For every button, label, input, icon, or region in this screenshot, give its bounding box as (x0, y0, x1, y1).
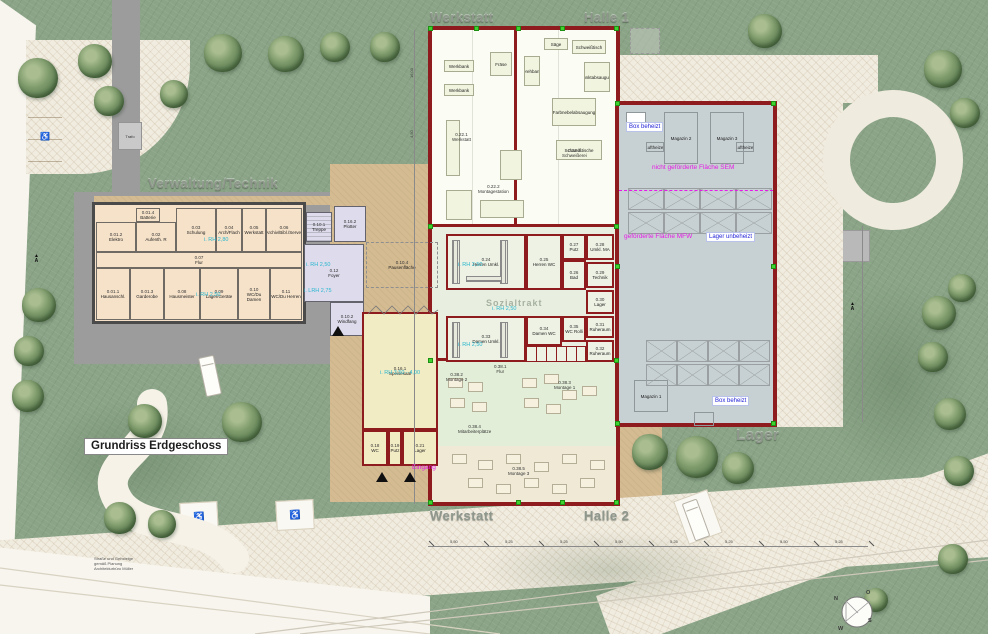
room-magazin-3: Magazin 3 (710, 112, 744, 164)
section-marker-a: ▲A (34, 254, 39, 264)
annotation: nicht geförderte Fläche SEM (652, 164, 734, 171)
room-0.11: 0.11WC/Du Herren (270, 268, 302, 320)
tree (632, 434, 668, 470)
tree (944, 456, 974, 486)
room-name: Windfang (337, 319, 356, 324)
room-name: Archiv/Bibl./Server (266, 230, 302, 235)
desk (496, 484, 511, 494)
room-0.01.2: 0.01.2Elektro (96, 222, 136, 252)
room-0.10.1: 0.10.1Treppe (306, 212, 332, 242)
annotation: geförderte Fläche MFW (624, 233, 692, 240)
room-magazin-2: Magazin 2 (664, 112, 698, 164)
desk (450, 398, 465, 408)
outdoor-shed (630, 28, 660, 54)
room (526, 346, 586, 362)
survey-point (615, 264, 620, 269)
desk (562, 390, 577, 400)
desk (534, 462, 549, 472)
annotation: i. RH 2,50 (492, 306, 516, 312)
room-name: Magazin 2 (671, 136, 692, 141)
room-0.26: 0.26Bad (562, 260, 586, 290)
tree (148, 510, 176, 538)
room-name: Magazin 3 (717, 136, 738, 141)
room-name: Werkstatt (245, 230, 264, 235)
room (480, 200, 524, 218)
storage-rack (700, 188, 736, 210)
storage-rack (739, 340, 770, 362)
room-name: Lager (414, 448, 426, 453)
survey-point (516, 26, 521, 31)
room-name: WC (371, 448, 379, 453)
compass-w: W (838, 626, 843, 632)
tree (222, 402, 262, 442)
handicap-stall: ♿ (275, 499, 315, 531)
tree (78, 44, 112, 78)
desk (582, 386, 597, 396)
room-name: Luftheizer (736, 145, 754, 150)
annotation: Box beheizt (712, 396, 749, 406)
dimension-line-left (414, 30, 415, 504)
compass-n: N (834, 596, 838, 602)
room-name: Säge (551, 42, 562, 47)
room-0.06: 0.06Archiv/Bibl./Server (266, 208, 302, 252)
room-name: Treppe (312, 227, 326, 232)
label-werkstatt-top: Werkstatt (430, 10, 494, 25)
room-name: Lager (594, 302, 606, 307)
trafo-label: Trafo (125, 134, 134, 139)
interior-wall (432, 224, 616, 227)
room-schwei-tisch: Schweißtisch (572, 40, 606, 54)
compass-e: O (866, 590, 870, 596)
room-name: Aufenth. R (145, 237, 166, 242)
tree (922, 296, 956, 330)
desk (562, 454, 577, 464)
room-0.03: 0.03Schulung (176, 208, 216, 252)
bench (466, 276, 502, 282)
tree (722, 452, 754, 484)
storage-rack (664, 212, 700, 234)
label-halle1: Halle 1 (584, 10, 629, 25)
annotation: Eingang (412, 464, 436, 471)
room-name: Farbnebelabsaugung (553, 110, 596, 115)
room-name: Hausanschl. (101, 294, 126, 299)
room-name: Bad (570, 275, 578, 280)
room-name: Herren WC (533, 262, 556, 267)
storage-rack (646, 364, 677, 386)
survey-point (615, 421, 620, 426)
annotation: Lager unbeheizt (706, 232, 755, 242)
handicap-icon: ♿ (40, 132, 50, 141)
room-farbnebelabsaugung: Farbnebelabsaugung (552, 98, 596, 126)
label-halle2: Halle 2 (584, 508, 629, 523)
survey-point (560, 500, 565, 505)
room (694, 412, 714, 426)
dimension-value: 5,25 (505, 539, 513, 544)
tree (948, 274, 976, 302)
room-name: Werkbank (449, 88, 469, 93)
survey-point (428, 500, 433, 505)
room (446, 190, 472, 220)
desk (468, 478, 483, 488)
storage-rack (700, 212, 736, 234)
survey-point (516, 500, 521, 505)
tree (22, 288, 56, 322)
plan-notes: Straße und Gehsteige gemäß Planung Archi… (94, 556, 194, 571)
room-0.19: 0.19Putz (388, 430, 402, 466)
room-name: Plotter (343, 224, 356, 229)
interior-wall (514, 30, 517, 224)
loop-path (823, 90, 963, 230)
annotation: Box beheizt (626, 122, 663, 132)
desk (452, 454, 467, 464)
lawn-patch (480, 530, 740, 610)
tree (676, 436, 718, 478)
tree (160, 80, 188, 108)
room-0.35: 0.35WC Rolli (562, 316, 586, 342)
storage-rack (736, 212, 772, 234)
tree (104, 502, 136, 534)
survey-point (614, 26, 619, 31)
room-0.10.4: 0.10.4Pausenfläche (366, 242, 438, 288)
room-0.34: 0.34Damen WC (526, 316, 562, 346)
survey-point (771, 264, 776, 269)
desk (524, 398, 539, 408)
annotation: 0.22.2 Montagestation (478, 184, 509, 194)
room-name: Pausenfläche (388, 265, 415, 270)
lockers (452, 322, 460, 358)
room-0.21: 0.21Lager (402, 430, 438, 466)
storage-rack (708, 364, 739, 386)
room-s-ge: Säge (544, 38, 568, 50)
room-werkbank: Werkbank (444, 60, 474, 72)
survey-point (474, 26, 479, 31)
room-punktabsaugung: Punktabsaugung (584, 62, 610, 92)
room-0.16.2: 0.16.2Plotter (334, 206, 366, 242)
room-0.04: 0.04Arch/Flach (216, 208, 242, 252)
tree (204, 34, 242, 72)
room-0.01.1: 0.01.1Hausanschl. (96, 268, 130, 320)
desk (522, 378, 537, 388)
room-name: Schweißtisch (576, 45, 603, 50)
annotation: 0.22.3 Schweißerei (562, 148, 587, 158)
survey-point (771, 101, 776, 106)
room-name: WC Rolli (565, 329, 583, 334)
room-name: WC/Du Damen (239, 292, 269, 302)
dimension-value: 5,25 (835, 539, 843, 544)
compass-s: S (868, 618, 872, 624)
survey-point (614, 358, 619, 363)
room-0.01.3: 0.01.3Garderobe (130, 268, 164, 320)
room-name: Hausmeister (169, 294, 194, 299)
survey-point (614, 224, 619, 229)
annotation: i. RH 2,50 (458, 342, 482, 348)
storage-rack (628, 188, 664, 210)
label-lager: Lager (736, 427, 779, 444)
tree (370, 32, 400, 62)
room-name: Arch/Flach (218, 230, 240, 235)
desk (524, 478, 539, 488)
room-0.30: 0.30Lager (586, 290, 614, 314)
room-0.07: 0.07Flur (96, 252, 302, 268)
survey-point (428, 224, 433, 229)
annotation: 0.38.1 Flur (494, 364, 507, 374)
tree (18, 58, 58, 98)
desk (468, 382, 483, 392)
entrance-marker (332, 326, 344, 336)
label-verwaltung: Verwaltung/Technik (148, 176, 278, 191)
tree (950, 98, 980, 128)
survey-point (428, 26, 433, 31)
dimension-value: 5,25 (725, 539, 733, 544)
room-name: Magazin 1 (641, 394, 662, 399)
north-path (618, 55, 878, 103)
room-name: Ruheraum (589, 327, 610, 332)
desk (580, 478, 595, 488)
room-name: Flur (195, 260, 203, 265)
room-name: Batterie (140, 215, 156, 220)
desk (506, 454, 521, 464)
room-0.10: 0.10WC/Du Damen (238, 268, 270, 320)
annotation: 0.38.3 Montage 1 (554, 380, 575, 390)
storage-rack (677, 364, 708, 386)
room-name: Umkl. MA (590, 247, 610, 252)
room-0.29: 0.29Technik (586, 262, 614, 288)
room-name: Putz (569, 247, 578, 252)
annotation: 0.38.4 Mitarbeiterplätze (458, 424, 491, 434)
room-0.32: 0.32Ruheraum (586, 340, 614, 362)
parking-stall-lines (28, 96, 62, 166)
tree (938, 544, 968, 574)
room-0.25: 0.25Herren WC (526, 234, 562, 290)
tree (924, 50, 962, 88)
room-drehbank: Drehbank (524, 56, 540, 86)
room-0.18: 0.18WC (362, 430, 388, 466)
tree (94, 86, 124, 116)
room-name: Werkbank (449, 64, 469, 69)
room-0.08: 0.08Hausmeister (164, 268, 200, 320)
annotation: i. RH 3,50 - 4,00 (380, 370, 420, 376)
note-line: Architekturbüro Müller (94, 566, 194, 571)
section-marker-a: ▲A (850, 302, 855, 312)
desk (546, 404, 561, 414)
room-name: Luftheizer (646, 145, 664, 150)
handicap-stall: ♿ (179, 501, 219, 533)
room-0.02: 0.02Aufenth. R (136, 222, 176, 252)
room-0.27: 0.27Putz (562, 234, 586, 260)
desk (552, 484, 567, 494)
room-0.31: 0.31Ruheraum (586, 316, 614, 338)
room (500, 150, 522, 180)
survey-point (771, 421, 776, 426)
desk (478, 460, 493, 470)
dimension-value: 5,50 (780, 539, 788, 544)
room (446, 120, 460, 176)
room-name: Foyer (328, 273, 340, 278)
room-fr-se: Fräse (490, 52, 512, 76)
room-name: Elektro (109, 237, 123, 242)
tree (934, 398, 966, 430)
tree (12, 380, 44, 412)
tree (320, 32, 350, 62)
survey-point (615, 101, 620, 106)
annotation: i. RH 2,50 (458, 262, 482, 268)
storage-rack (628, 212, 664, 234)
annotation: i. RH 2,50 (306, 262, 330, 268)
dimension-value: 16,00 (409, 68, 414, 78)
desk (590, 460, 605, 470)
storage-rack (664, 188, 700, 210)
dimension-value: 5,25 (560, 539, 568, 544)
annotation: i. RH 2,50 (196, 292, 220, 298)
room-name: Drehbank (524, 69, 540, 74)
storage-rack (677, 340, 708, 362)
entrance-marker (376, 472, 388, 482)
grid-line (558, 30, 559, 224)
lager-zone-line (619, 190, 773, 191)
survey-point (428, 358, 433, 363)
tree (128, 404, 162, 438)
lockers (500, 322, 508, 358)
room-name: Punktabsaugung (584, 75, 610, 80)
annotation: i. LRH 2,75 (304, 288, 332, 294)
room-werkbank: Werkbank (444, 84, 474, 96)
tree (748, 14, 782, 48)
dimension-value: 5,50 (615, 539, 623, 544)
room-name: Technik (592, 275, 607, 280)
dimension-value: 5,50 (450, 539, 458, 544)
annotation: i. RH 2,80 (204, 237, 228, 243)
dimension-line-right (862, 226, 863, 422)
dimension-value: 5,25 (670, 539, 678, 544)
room-name: Putz (390, 448, 399, 453)
storage-rack (646, 340, 677, 362)
site-plan: ♿ Trafo ♿ ♿ Sozialtrakt ▲A ▲A (0, 0, 988, 634)
annotation: 0.22.1 Werkstatt (452, 132, 471, 142)
room-luftheizer: Luftheizer (736, 142, 754, 152)
annotation: 0.38.2 Montage 2 (446, 372, 467, 382)
tree (14, 336, 44, 366)
entrance-marker (404, 472, 416, 482)
room-name: Schulung (187, 230, 206, 235)
storage-rack (739, 364, 770, 386)
trafo-box: Trafo (118, 122, 142, 150)
label-werkstatt-bottom: Werkstatt (430, 508, 494, 523)
room-name: Garderobe (136, 294, 158, 299)
room-0.01.4: 0.01.4Batterie (136, 208, 160, 222)
room-name: Ruheraum (589, 351, 610, 356)
room-name: WC/Du Herren (271, 294, 301, 299)
room-name: Fräse (495, 62, 507, 67)
room-0.28: 0.28Umkl. MA (586, 234, 614, 260)
storage-rack (708, 340, 739, 362)
room-name: Damen WC (532, 331, 555, 336)
storage-rack (736, 188, 772, 210)
tree (918, 342, 948, 372)
desk (472, 402, 487, 412)
annotation: 0.38.5 Montage 3 (508, 466, 529, 476)
plan-title: Grundriss Erdgeschoss (84, 438, 228, 455)
tree (268, 36, 304, 72)
survey-point (614, 500, 619, 505)
survey-point (560, 26, 565, 31)
room-0.05: 0.05Werkstatt (242, 208, 266, 252)
dimension-value: 4,50 (409, 130, 414, 138)
room-luftheizer: Luftheizer (646, 142, 664, 152)
dimension-line-bottom (428, 546, 868, 547)
